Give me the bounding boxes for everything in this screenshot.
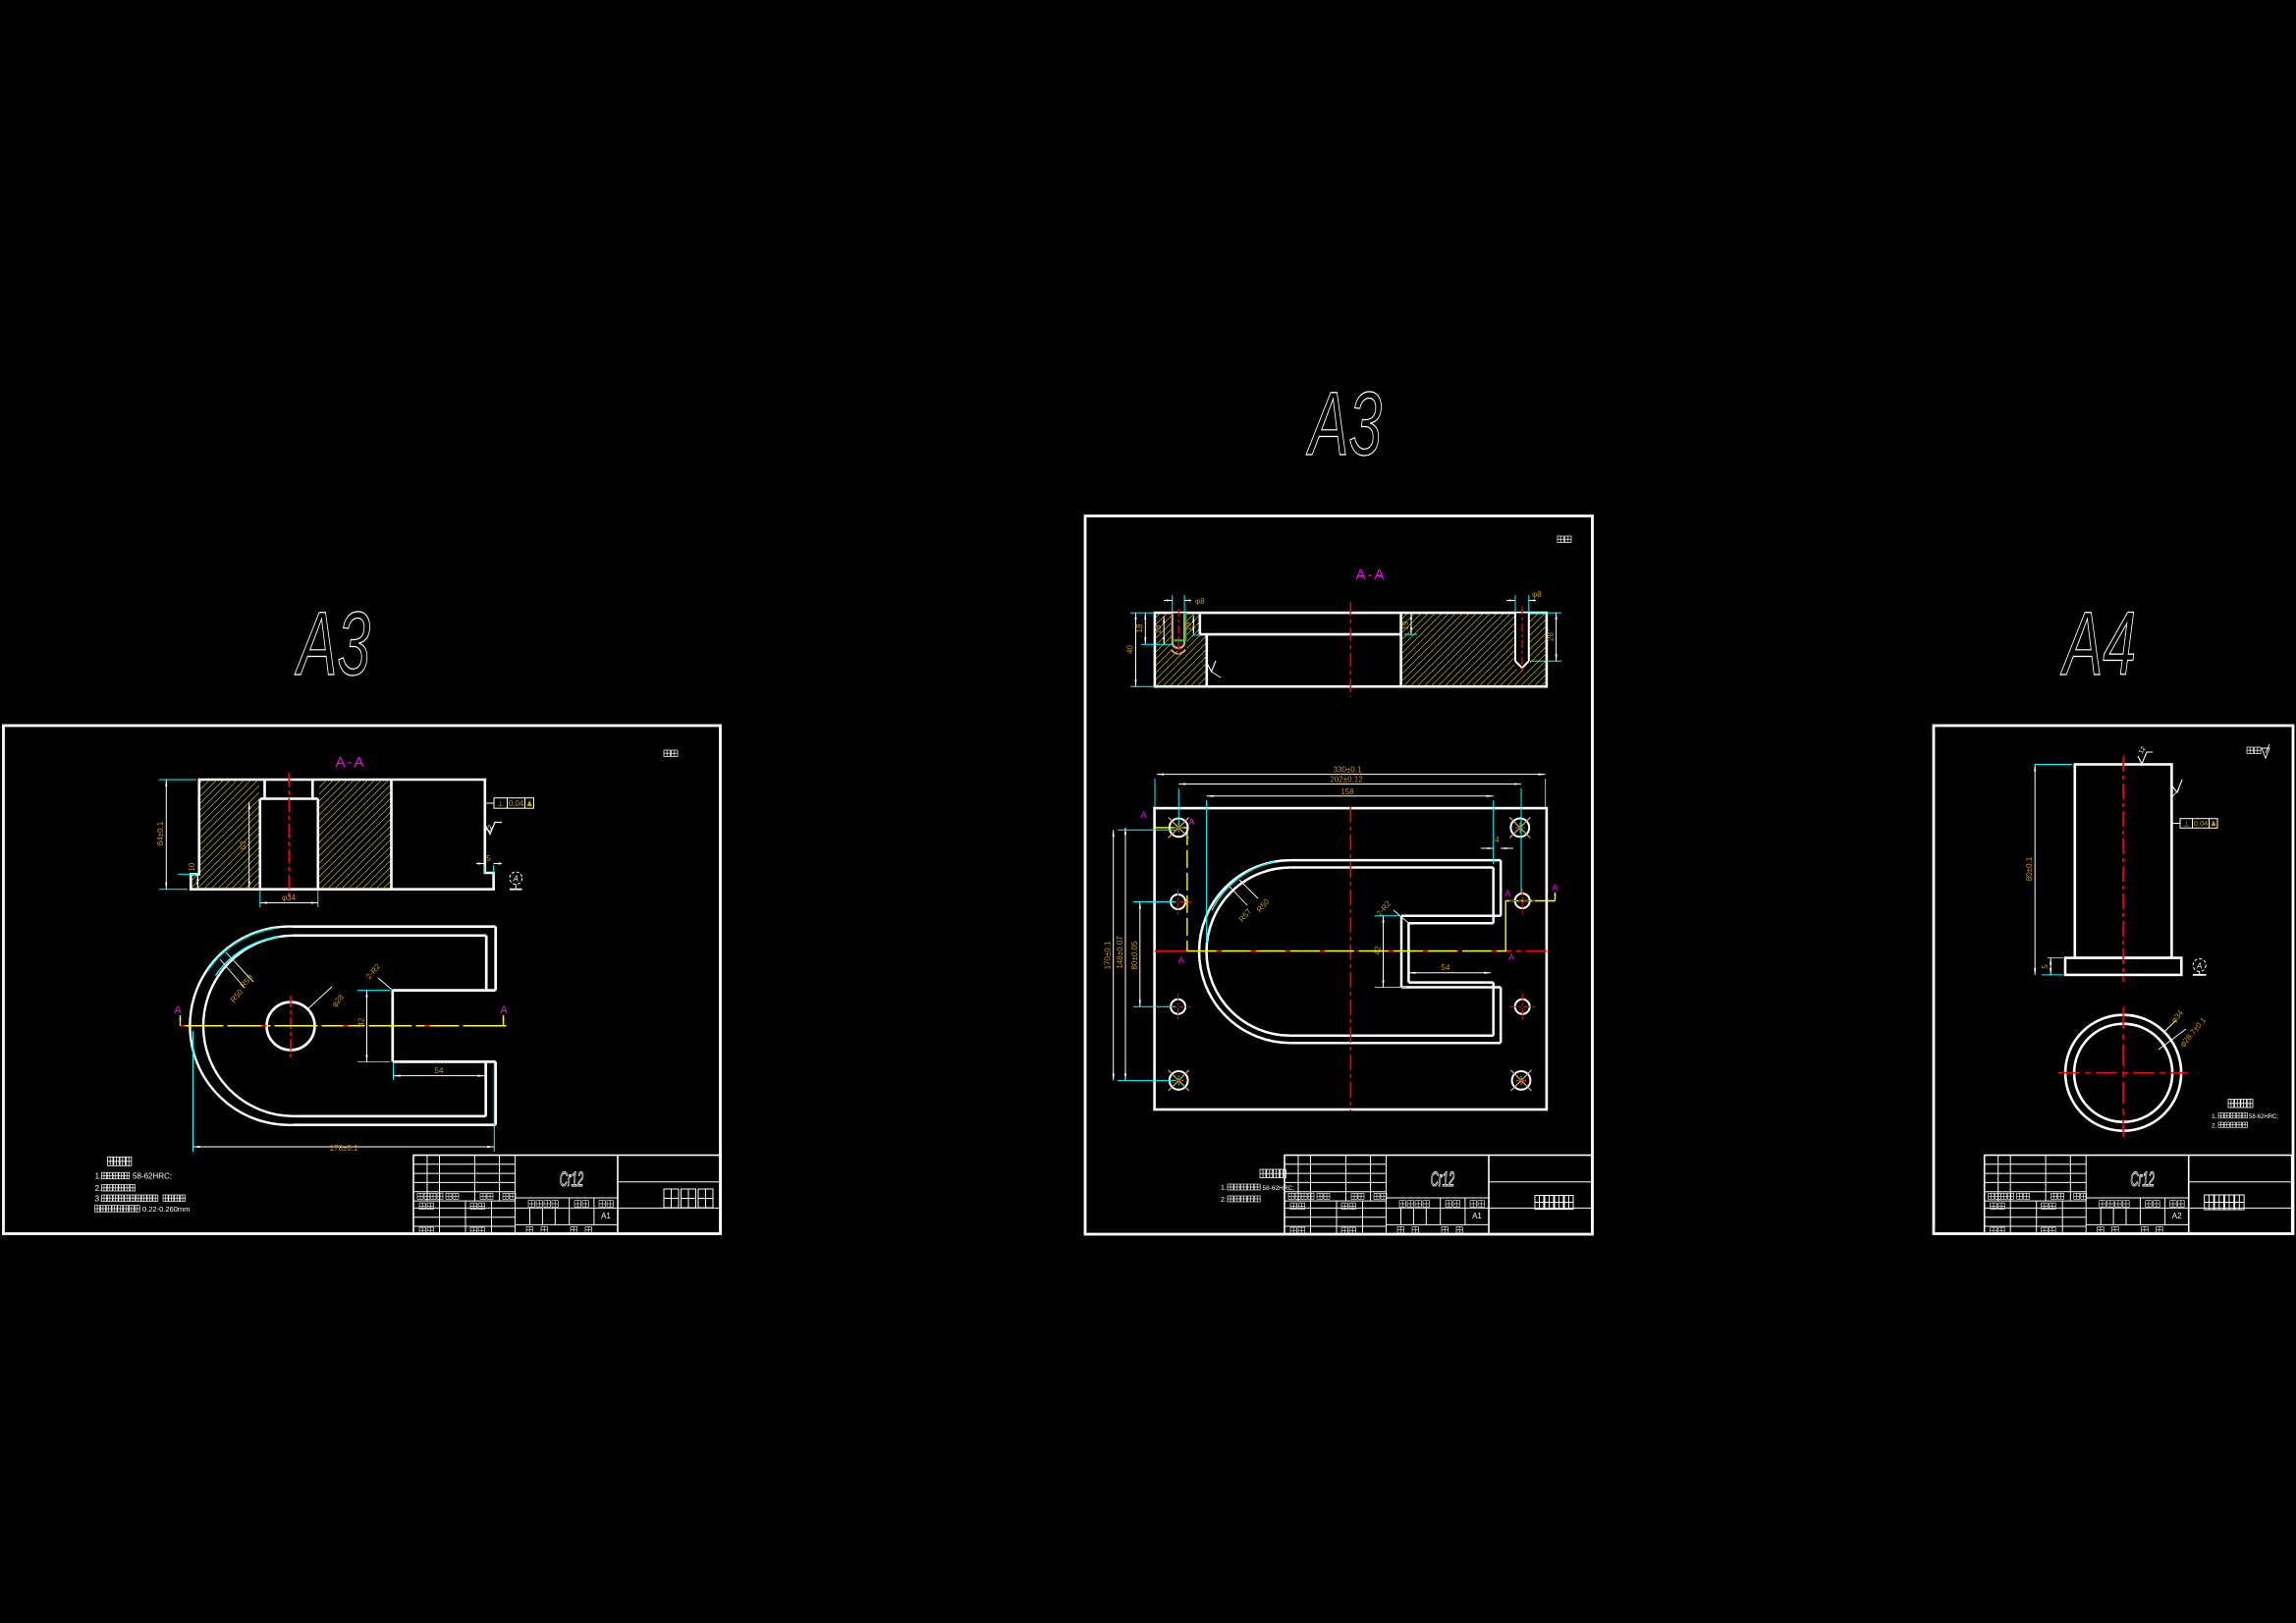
svg-text:φ8: φ8	[1532, 590, 1542, 599]
svg-text:A: A	[1508, 952, 1514, 962]
svg-text:A: A	[1188, 817, 1194, 827]
svg-text:0.04: 0.04	[509, 799, 524, 808]
svg-text:202±0.12: 202±0.12	[1330, 776, 1363, 784]
svg-text:A: A	[1504, 889, 1510, 898]
svg-text:18: 18	[1154, 624, 1163, 633]
svg-text:40: 40	[1126, 645, 1135, 654]
svg-text:5: 5	[2041, 964, 2050, 969]
svg-text:158: 158	[1340, 787, 1354, 796]
svg-text:84±0.1: 84±0.1	[156, 821, 165, 845]
svg-text:2.: 2.	[2212, 1123, 2217, 1130]
svg-text:42: 42	[357, 1017, 366, 1026]
svg-text:Cr12: Cr12	[1431, 1168, 1455, 1191]
svg-text:A1: A1	[1472, 1212, 1482, 1220]
svg-text:0.04: 0.04	[2194, 819, 2209, 828]
svg-text:28: 28	[1547, 632, 1556, 641]
svg-text:A: A	[513, 875, 519, 884]
svg-text:1.: 1.	[2212, 1113, 2217, 1120]
svg-text:A-A: A-A	[1355, 567, 1386, 583]
svg-text:φ8: φ8	[1195, 597, 1205, 606]
svg-text:58-62HRC;: 58-62HRC;	[1263, 1185, 1295, 1192]
svg-text:A4: A4	[2060, 594, 2136, 694]
svg-text:Cr12: Cr12	[560, 1168, 584, 1191]
svg-text:19: 19	[1184, 622, 1193, 630]
svg-text:178±0.1: 178±0.1	[330, 1144, 358, 1153]
svg-text:0.22-0.260mm: 0.22-0.260mm	[142, 1205, 190, 1214]
svg-text:170±0.1: 170±0.1	[1104, 941, 1113, 969]
svg-text:5: 5	[486, 854, 491, 863]
svg-text:148±0.07: 148±0.07	[1116, 936, 1124, 969]
svg-text:A1: A1	[601, 1212, 611, 1220]
svg-text:1.: 1.	[95, 1172, 102, 1181]
svg-text:4: 4	[1495, 836, 1500, 844]
svg-text:Cr12: Cr12	[2130, 1168, 2155, 1191]
svg-text:A-A: A-A	[335, 754, 365, 771]
svg-text:54: 54	[435, 1066, 444, 1075]
svg-text:A3: A3	[1306, 374, 1382, 474]
svg-text:80±0.05: 80±0.05	[1130, 941, 1139, 969]
svg-text:⊥: ⊥	[2183, 819, 2190, 828]
svg-text:19: 19	[1401, 621, 1410, 629]
svg-text:1.: 1.	[1221, 1185, 1227, 1192]
svg-text:80±0.1: 80±0.1	[2025, 856, 2034, 881]
svg-text:54: 54	[1442, 963, 1450, 972]
svg-text:58-62HRC;: 58-62HRC;	[133, 1172, 172, 1181]
svg-text:A2: A2	[2172, 1212, 2182, 1220]
svg-text:18: 18	[1135, 623, 1144, 632]
svg-text:A: A	[500, 1004, 508, 1016]
svg-text:φ34: φ34	[282, 893, 297, 902]
svg-text:A: A	[174, 1004, 182, 1016]
svg-text:A3: A3	[295, 594, 370, 694]
svg-text:2.: 2.	[95, 1184, 102, 1193]
svg-text:A: A	[1178, 955, 1184, 965]
svg-text:42: 42	[1374, 946, 1383, 954]
svg-text:2.: 2.	[1221, 1197, 1227, 1204]
svg-text:10: 10	[188, 862, 196, 871]
svg-text:A: A	[1140, 810, 1146, 820]
svg-text:63: 63	[240, 840, 248, 849]
svg-text:A: A	[1552, 883, 1558, 893]
svg-text:58-62HRC;: 58-62HRC;	[2249, 1114, 2278, 1120]
svg-text:3.: 3.	[95, 1195, 102, 1204]
svg-text:A: A	[2196, 961, 2202, 970]
svg-text:⊥: ⊥	[497, 799, 504, 808]
svg-text:330±0.1: 330±0.1	[1334, 766, 1362, 775]
